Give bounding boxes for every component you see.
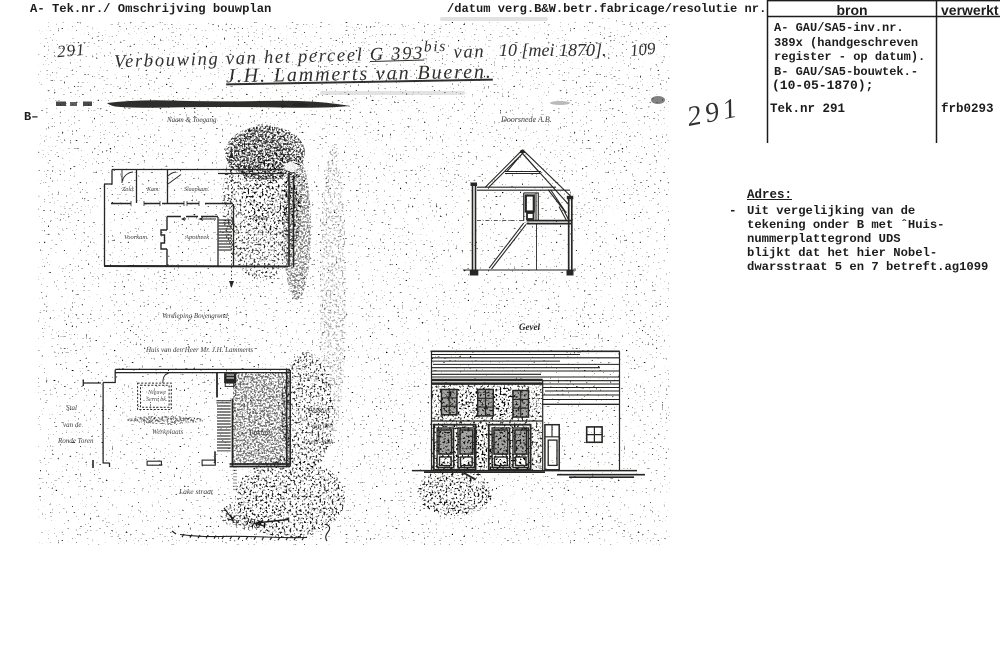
svg-text:Pakhuis: Pakhuis [248,428,273,437]
svg-text:Apotheek: Apotheek [184,234,209,241]
svg-text:Stal: Stal [66,404,77,412]
svg-text:Pakhuis: Pakhuis [307,407,331,415]
svg-text:Naam & Toegang: Naam & Toegang [166,116,217,124]
svg-text:Serre bk.: Serre bk. [146,397,167,403]
svg-text:Doorsnede A.B.: Doorsnede A.B. [500,115,552,124]
svg-text:Slaapkam.: Slaapkam. [184,187,209,193]
svg-text:Verdieping Bovengrond: Verdieping Bovengrond [162,312,228,320]
svg-text:Voorkam.: Voorkam. [124,234,149,241]
svg-text:van de: van de [63,421,81,429]
svg-text:Gevel: Gevel [519,322,540,332]
svg-text:Nieuwe: Nieuwe [147,390,166,396]
svg-text:Kam.: Kam. [146,187,160,193]
svg-text:Zold.: Zold. [122,187,135,193]
svg-text:heer Valk: heer Valk [307,438,334,446]
svg-text:van de: van de [311,422,329,430]
svg-text:Lake straat: Lake straat [178,487,214,496]
svg-text:Werkplaats: Werkplaats [152,428,184,436]
svg-text:Ronde Toren: Ronde Toren [57,437,94,445]
svg-text:Zolder: Zolder [252,215,270,222]
svg-text:Huis van den Heer Mr. J.H. Lam: Huis van den Heer Mr. J.H. Lammerts [145,346,253,354]
